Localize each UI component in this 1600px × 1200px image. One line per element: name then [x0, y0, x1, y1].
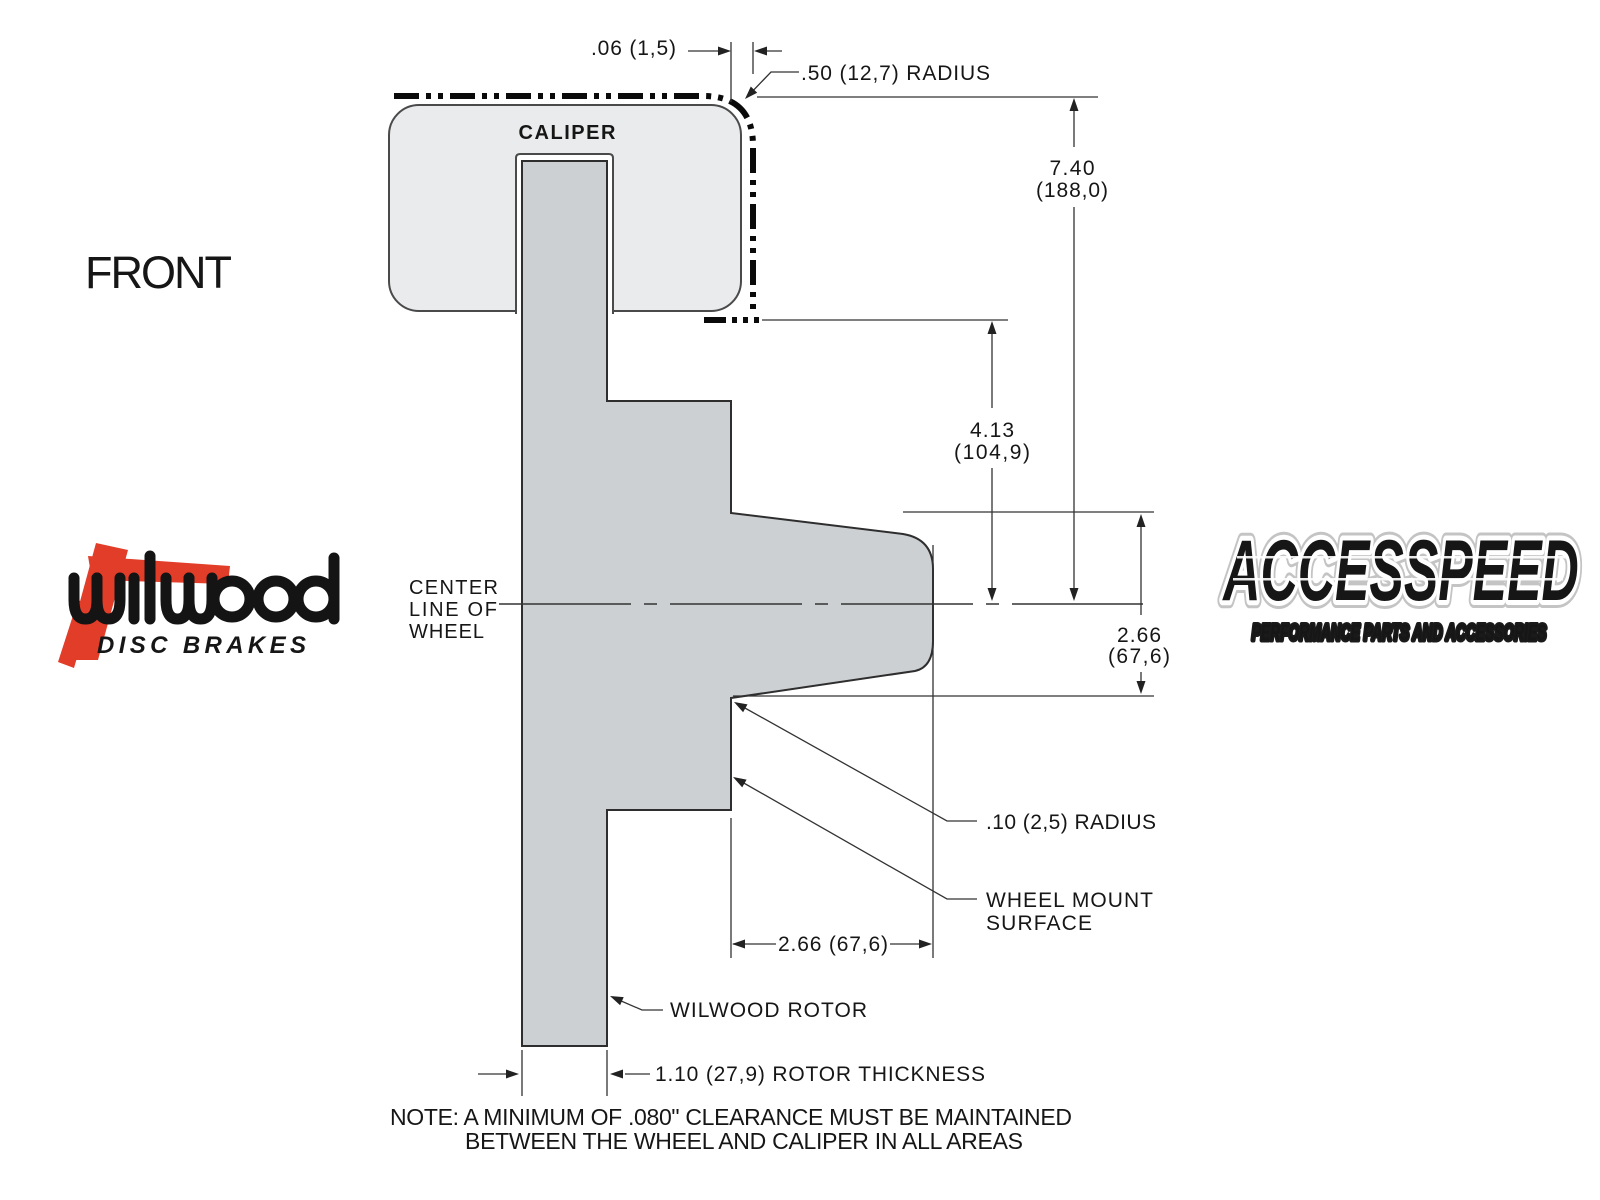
- svg-text:(188,0): (188,0): [1036, 179, 1108, 202]
- svg-text:SURFACE: SURFACE: [986, 912, 1092, 935]
- svg-text:WILWOOD ROTOR: WILWOOD ROTOR: [670, 999, 867, 1022]
- svg-text:(67,6): (67,6): [1108, 645, 1170, 668]
- svg-text:WHEEL: WHEEL: [409, 621, 484, 643]
- svg-text:BETWEEN THE WHEEL AND CALIPER: BETWEEN THE WHEEL AND CALIPER IN ALL ARE…: [465, 1128, 1023, 1154]
- svg-text:2.66: 2.66: [1117, 624, 1161, 647]
- svg-text:FRONT: FRONT: [85, 247, 232, 298]
- svg-text:.06 (1,5): .06 (1,5): [591, 37, 676, 60]
- svg-text:WHEEL MOUNT: WHEEL MOUNT: [986, 889, 1153, 912]
- svg-text:NOTE: A MINIMUM OF .080" CLEAR: NOTE: A MINIMUM OF .080" CLEARANCE MUST …: [390, 1104, 1072, 1130]
- svg-text:4.13: 4.13: [970, 419, 1014, 442]
- svg-text:LINE OF: LINE OF: [409, 599, 497, 621]
- svg-text:(104,9): (104,9): [954, 441, 1030, 464]
- svg-text:1.10 (27,9) ROTOR THICKNESS: 1.10 (27,9) ROTOR THICKNESS: [655, 1063, 985, 1086]
- svg-text:PERFORMANCE PARTS AND ACCESSOR: PERFORMANCE PARTS AND ACCESSORIES: [1252, 620, 1547, 645]
- svg-text:7.40: 7.40: [1050, 157, 1095, 180]
- svg-text:.50 (12,7) RADIUS: .50 (12,7) RADIUS: [801, 62, 990, 85]
- svg-text:CENTER: CENTER: [409, 577, 498, 599]
- svg-text:ACCESSPEED: ACCESSPEED: [1222, 524, 1579, 620]
- svg-text:.10 (2,5) RADIUS: .10 (2,5) RADIUS: [986, 811, 1156, 834]
- svg-text:2.66 (67,6): 2.66 (67,6): [778, 933, 888, 956]
